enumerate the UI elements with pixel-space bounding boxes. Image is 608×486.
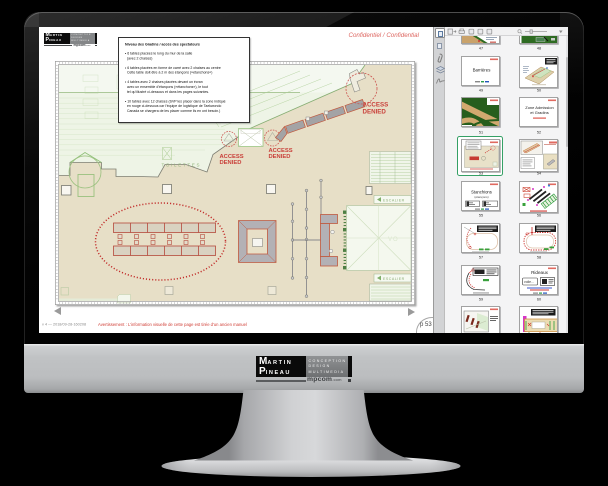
svg-text:DENIED: DENIED — [268, 154, 290, 160]
svg-text:ESCALIER: ESCALIER — [383, 277, 405, 281]
svg-text:(étançons): (étançons) — [474, 195, 488, 199]
svg-text:ESCALIER: ESCALIER — [383, 198, 405, 202]
svg-text:DENIED: DENIED — [219, 160, 241, 166]
svg-text:Barrières: Barrières — [473, 67, 492, 72]
svg-text:et Gradins: et Gradins — [530, 110, 548, 115]
svg-text:DENIED: DENIED — [362, 108, 386, 115]
svg-text:TOILETTES: TOILETTES — [161, 162, 201, 167]
svg-text:Rideaux: Rideaux — [531, 270, 549, 275]
svg-text:ACCESS: ACCESS — [268, 148, 292, 154]
svg-text:voile...: voile... — [524, 279, 534, 283]
svg-text:ACCESS: ACCESS — [219, 154, 243, 160]
svg-text:VO: VO — [388, 237, 399, 243]
svg-text:Stanchions: Stanchions — [471, 189, 492, 194]
